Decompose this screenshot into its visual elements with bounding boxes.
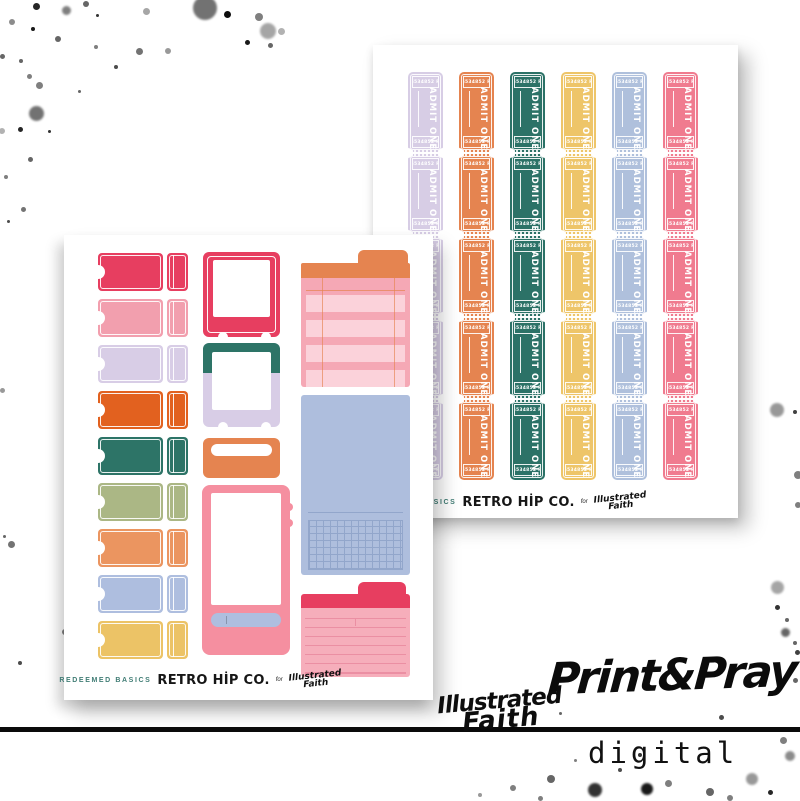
ink-splatter bbox=[94, 45, 98, 49]
stub-rule bbox=[173, 623, 174, 657]
perforation bbox=[564, 232, 593, 234]
perforation-notch bbox=[693, 394, 703, 404]
admit-one-label: ADMIT ONE bbox=[580, 251, 590, 301]
ticket-stub-end-sticker bbox=[167, 345, 188, 383]
phone-bar bbox=[211, 613, 281, 627]
perforation bbox=[513, 314, 542, 316]
notecard-folder-sticker bbox=[301, 582, 410, 677]
stub-outline bbox=[100, 439, 161, 473]
perforation bbox=[411, 150, 440, 152]
admit-one-ticket-sticker: 6534852 R6534852 RADMIT ONE bbox=[561, 400, 596, 480]
phone-button bbox=[285, 503, 293, 511]
folder-band bbox=[301, 263, 410, 278]
perforation bbox=[615, 154, 644, 156]
perforation-notch bbox=[591, 230, 601, 240]
perforation bbox=[615, 236, 644, 238]
ticket-grid: 6534852 R6534852 RADMIT ONE6534852 R6534… bbox=[408, 72, 733, 480]
admit-one-label: ADMIT ONE bbox=[529, 87, 539, 137]
ink-splatter bbox=[48, 130, 51, 133]
ink-splatter bbox=[83, 1, 89, 7]
perforation bbox=[615, 232, 644, 234]
ink-splatter bbox=[510, 785, 516, 791]
tracker-stripe bbox=[306, 320, 405, 337]
ink-splatter bbox=[29, 106, 44, 121]
perforation bbox=[564, 318, 593, 320]
admit-one-ticket-sticker: 6534852 R6534852 RADMIT ONE bbox=[663, 154, 698, 234]
admit-one-ticket-sticker: 6534852 R6534852 RADMIT ONE bbox=[510, 154, 545, 234]
perforation bbox=[615, 314, 644, 316]
ink-splatter bbox=[795, 502, 800, 508]
stub-outline bbox=[100, 485, 161, 519]
ink-splatter bbox=[19, 59, 23, 63]
stub-notch bbox=[91, 495, 105, 509]
print-and-pray-logo: Print&Pray bbox=[546, 646, 797, 706]
perforation-notch bbox=[489, 312, 499, 322]
stub-outline bbox=[169, 577, 186, 611]
ink-splatter bbox=[785, 751, 795, 761]
stub-notch bbox=[91, 541, 105, 555]
ink-splatter bbox=[28, 157, 33, 162]
perforation bbox=[462, 150, 491, 152]
ticket-rule bbox=[469, 419, 470, 455]
admit-one-label: ADMIT ONE bbox=[580, 415, 590, 465]
perforation-notch bbox=[607, 230, 617, 240]
sheet-footer: REDEEMED BASICS RETRO HİP CO. for Illust… bbox=[16, 673, 385, 688]
for-label: for bbox=[276, 677, 283, 683]
perforation-notch bbox=[591, 148, 601, 158]
notecard-tick bbox=[355, 618, 356, 626]
brand-label: RETRO HİP CO. bbox=[462, 495, 574, 510]
illustrated-faith-logo: Illustrated Faith bbox=[593, 492, 647, 513]
perforation-notch bbox=[438, 312, 448, 322]
stub-rule bbox=[173, 485, 174, 519]
notecard-line bbox=[305, 627, 406, 628]
stub-outline bbox=[100, 623, 161, 657]
ticket-rule bbox=[469, 91, 470, 127]
ink-splatter bbox=[478, 793, 482, 797]
admit-one-ticket-sticker: 6534852 R6534852 RADMIT ONE bbox=[612, 318, 647, 398]
admit-one-ticket-sticker: 6534852 R6534852 RADMIT ONE bbox=[663, 236, 698, 316]
stub-outline bbox=[169, 531, 186, 565]
ink-splatter bbox=[547, 775, 555, 783]
ticket-rule bbox=[673, 91, 674, 127]
ink-splatter bbox=[62, 6, 71, 15]
perforation bbox=[513, 396, 542, 398]
ink-splatter bbox=[7, 220, 10, 223]
ink-splatter bbox=[136, 48, 143, 55]
ink-splatter bbox=[3, 535, 6, 538]
perforation-notch bbox=[556, 148, 566, 158]
admit-one-label: ADMIT ONE bbox=[580, 169, 590, 219]
perforation-notch bbox=[607, 394, 617, 404]
perforation bbox=[615, 396, 644, 398]
ticket-rule bbox=[418, 91, 419, 127]
ticket-rule bbox=[673, 419, 674, 455]
stub-outline bbox=[100, 255, 161, 289]
grid-pattern bbox=[308, 520, 403, 570]
perforation-notch bbox=[693, 312, 703, 322]
frame-notch bbox=[218, 422, 228, 432]
ticket-stub-end-sticker bbox=[167, 299, 188, 337]
perforation-notch bbox=[438, 230, 448, 240]
notecard-line bbox=[305, 618, 406, 619]
ticket-rule bbox=[571, 173, 572, 209]
ink-splatter bbox=[794, 471, 800, 479]
ink-splatter bbox=[33, 3, 40, 10]
ink-splatter bbox=[193, 0, 217, 20]
illustrated-faith-logo: Illustrated Faith bbox=[288, 670, 342, 691]
ticket-stub-sticker bbox=[98, 529, 163, 567]
ticket-stub-sticker bbox=[98, 391, 163, 429]
ticket-column: 6534852 R6534852 RADMIT ONE6534852 R6534… bbox=[612, 72, 647, 480]
perforation bbox=[564, 314, 593, 316]
ink-splatter bbox=[706, 788, 714, 796]
admit-one-label: ADMIT ONE bbox=[478, 251, 488, 301]
ink-splatter bbox=[278, 28, 285, 35]
tracker-vline bbox=[394, 278, 395, 387]
perforation-notch bbox=[556, 394, 566, 404]
perforation-notch bbox=[658, 148, 668, 158]
admit-one-ticket-sticker: 6534852 R6534852 RADMIT ONE bbox=[510, 318, 545, 398]
perforation bbox=[564, 400, 593, 402]
perforation-notch bbox=[505, 394, 515, 404]
product-mockup: 6534852 R6534852 RADMIT ONE6534852 R6534… bbox=[0, 0, 800, 800]
stub-rule bbox=[173, 439, 174, 473]
ink-splatter bbox=[21, 207, 26, 212]
perforation-notch bbox=[505, 230, 515, 240]
admit-one-ticket-sticker: 6534852 R6534852 RADMIT ONE bbox=[663, 72, 698, 152]
ticket-rule bbox=[469, 337, 470, 373]
admit-one-ticket-sticker: 6534852 R6534852 RADMIT ONE bbox=[459, 318, 494, 398]
ink-splatter bbox=[165, 48, 171, 54]
admit-one-label: ADMIT ONE bbox=[682, 87, 692, 137]
ink-splatter bbox=[727, 795, 733, 801]
two-tone-frame-sticker bbox=[203, 343, 280, 427]
stub-notch bbox=[91, 449, 105, 463]
ticket-rule bbox=[673, 173, 674, 209]
stub-outline bbox=[100, 577, 161, 611]
notecard-line bbox=[305, 663, 406, 664]
admit-one-label: ADMIT ONE bbox=[427, 169, 437, 219]
ink-splatter bbox=[746, 773, 758, 785]
grid-box-sticker bbox=[301, 395, 410, 575]
ticket-rule bbox=[520, 337, 521, 373]
perforation-notch bbox=[658, 394, 668, 404]
perforation-notch bbox=[454, 312, 464, 322]
admit-one-ticket-sticker: 6534852 R6534852 RADMIT ONE bbox=[663, 318, 698, 398]
digital-label: digital bbox=[588, 736, 738, 770]
ink-splatter bbox=[55, 36, 61, 42]
ticket-rule bbox=[622, 255, 623, 291]
perforation-notch bbox=[642, 148, 652, 158]
admit-one-ticket-sticker: 6534852 R6534852 RADMIT ONE bbox=[612, 400, 647, 480]
ticket-stub-sticker bbox=[98, 575, 163, 613]
perforation bbox=[462, 314, 491, 316]
admit-one-label: ADMIT ONE bbox=[631, 169, 641, 219]
frame-screen bbox=[213, 260, 270, 317]
perforation bbox=[462, 154, 491, 156]
stub-notch bbox=[91, 587, 105, 601]
camera-frame-sticker bbox=[203, 252, 280, 337]
admit-one-label: ADMIT ONE bbox=[682, 415, 692, 465]
ticket-rule bbox=[520, 419, 521, 455]
perforation bbox=[411, 154, 440, 156]
perforation-notch bbox=[438, 394, 448, 404]
ink-splatter bbox=[9, 19, 15, 25]
ink-splatter bbox=[785, 618, 789, 622]
ticket-stub-sticker bbox=[98, 253, 163, 291]
perforation bbox=[666, 236, 695, 238]
admit-one-label: ADMIT ONE bbox=[682, 333, 692, 383]
perforation bbox=[462, 396, 491, 398]
frames-column bbox=[203, 252, 293, 655]
perforation bbox=[564, 154, 593, 156]
admit-one-ticket-sticker: 6534852 R6534852 RADMIT ONE bbox=[510, 72, 545, 152]
ink-splatter bbox=[18, 127, 23, 132]
perforation-notch bbox=[591, 312, 601, 322]
perforation bbox=[666, 150, 695, 152]
frame-notch bbox=[261, 332, 271, 342]
tracker-folder-sticker bbox=[301, 250, 410, 387]
ink-splatter bbox=[255, 13, 263, 21]
stub-notch bbox=[91, 633, 105, 647]
ink-splatter bbox=[574, 759, 577, 762]
perforation bbox=[666, 396, 695, 398]
ink-splatter bbox=[8, 541, 15, 548]
stub-outline bbox=[169, 439, 186, 473]
ticket-stub-sticker bbox=[98, 299, 163, 337]
perforation-notch bbox=[693, 230, 703, 240]
perforation-notch bbox=[540, 148, 550, 158]
perforation-notch bbox=[489, 230, 499, 240]
admit-one-label: ADMIT ONE bbox=[631, 251, 641, 301]
ink-splatter bbox=[4, 175, 8, 179]
ink-splatter bbox=[268, 43, 273, 48]
ink-splatter bbox=[36, 82, 43, 89]
admit-one-label: ADMIT ONE bbox=[529, 251, 539, 301]
admit-one-label: ADMIT ONE bbox=[631, 415, 641, 465]
perforation-notch bbox=[505, 312, 515, 322]
phone-bar-tick bbox=[226, 616, 227, 624]
ink-splatter bbox=[771, 581, 784, 594]
stub-outline bbox=[169, 485, 186, 519]
admit-one-label: ADMIT ONE bbox=[631, 333, 641, 383]
notecard-line bbox=[305, 645, 406, 646]
ink-splatter bbox=[78, 90, 81, 93]
ink-splatter bbox=[768, 790, 773, 795]
notecard-line bbox=[305, 654, 406, 655]
ticket-rule bbox=[571, 255, 572, 291]
ink-splatter bbox=[0, 388, 5, 393]
perforation bbox=[462, 236, 491, 238]
stub-notch bbox=[91, 311, 105, 325]
perforation-notch bbox=[505, 148, 515, 158]
admit-one-ticket-sticker: 6534852 R6534852 RADMIT ONE bbox=[459, 154, 494, 234]
ticket-column: 6534852 R6534852 RADMIT ONE6534852 R6534… bbox=[510, 72, 545, 480]
perforation-notch bbox=[454, 394, 464, 404]
admit-one-label: ADMIT ONE bbox=[427, 87, 437, 137]
tracker-body bbox=[301, 278, 410, 387]
ticket-rule bbox=[418, 173, 419, 209]
ticket-stub-end-sticker bbox=[167, 575, 188, 613]
grid-box-line bbox=[308, 512, 403, 513]
stub-notch bbox=[91, 265, 105, 279]
perforation bbox=[411, 232, 440, 234]
ink-splatter bbox=[114, 65, 118, 69]
perforation bbox=[513, 318, 542, 320]
perforation bbox=[462, 318, 491, 320]
ink-splatter bbox=[665, 780, 672, 787]
ink-splatter bbox=[588, 783, 602, 797]
ticket-stub-end-sticker bbox=[167, 621, 188, 659]
admit-one-label: ADMIT ONE bbox=[529, 169, 539, 219]
admit-one-ticket-sticker: 6534852 R6534852 RADMIT ONE bbox=[408, 72, 443, 152]
ticket-stub-end-sticker bbox=[167, 437, 188, 475]
admit-one-label: ADMIT ONE bbox=[682, 251, 692, 301]
ink-splatter bbox=[143, 8, 150, 15]
ink-splatter bbox=[0, 54, 5, 59]
ink-splatter bbox=[224, 11, 231, 18]
admit-one-ticket-sticker: 6534852 R6534852 RADMIT ONE bbox=[459, 400, 494, 480]
perforation bbox=[513, 400, 542, 402]
perforation bbox=[564, 396, 593, 398]
stub-outline bbox=[100, 347, 161, 381]
perforation bbox=[564, 150, 593, 152]
stub-outline bbox=[100, 301, 161, 335]
stub-outline bbox=[169, 393, 186, 427]
ticket-rule bbox=[469, 173, 470, 209]
perforation-notch bbox=[642, 230, 652, 240]
admit-one-ticket-sticker: 6534852 R6534852 RADMIT ONE bbox=[561, 154, 596, 234]
ink-splatter bbox=[770, 403, 784, 417]
perforation-notch bbox=[642, 312, 652, 322]
perforation-notch bbox=[607, 312, 617, 322]
perforation-notch bbox=[591, 394, 601, 404]
perforation bbox=[615, 318, 644, 320]
admit-one-label: ADMIT ONE bbox=[682, 169, 692, 219]
stub-rule bbox=[173, 301, 174, 335]
ticket-rule bbox=[520, 173, 521, 209]
ink-splatter bbox=[0, 128, 5, 134]
perforation-notch bbox=[658, 312, 668, 322]
tracker-line bbox=[306, 290, 405, 291]
perforation bbox=[666, 318, 695, 320]
admit-one-ticket-sticker: 6534852 R6534852 RADMIT ONE bbox=[663, 400, 698, 480]
ticket-rule bbox=[571, 91, 572, 127]
perforation bbox=[462, 400, 491, 402]
perforation bbox=[666, 232, 695, 234]
perforation-notch bbox=[540, 394, 550, 404]
perforation bbox=[666, 400, 695, 402]
ticket-stub-sticker bbox=[98, 345, 163, 383]
stub-outline bbox=[169, 347, 186, 381]
perforation bbox=[513, 236, 542, 238]
ticket-rule bbox=[520, 91, 521, 127]
perforation-notch bbox=[693, 148, 703, 158]
ticket-column: 6534852 R6534852 RADMIT ONE6534852 R6534… bbox=[561, 72, 596, 480]
admit-one-ticket-sticker: 6534852 R6534852 RADMIT ONE bbox=[510, 236, 545, 316]
admit-one-ticket-sticker: 6534852 R6534852 RADMIT ONE bbox=[612, 72, 647, 152]
ticket-rule bbox=[622, 173, 623, 209]
admit-one-label: ADMIT ONE bbox=[478, 87, 488, 137]
ticket-rule bbox=[622, 419, 623, 455]
perforation-notch bbox=[556, 230, 566, 240]
notecard-line bbox=[305, 636, 406, 637]
ink-splatter bbox=[780, 737, 787, 744]
ink-splatter bbox=[96, 14, 99, 17]
perforation bbox=[615, 150, 644, 152]
tracker-vline bbox=[322, 278, 323, 387]
admit-one-ticket-sticker: 6534852 R6534852 RADMIT ONE bbox=[561, 236, 596, 316]
stub-notch bbox=[91, 403, 105, 417]
ticket-rule bbox=[673, 337, 674, 373]
admit-one-ticket-sticker: 6534852 R6534852 RADMIT ONE bbox=[561, 72, 596, 152]
perforation bbox=[564, 236, 593, 238]
stub-rule bbox=[173, 531, 174, 565]
perforation-notch bbox=[540, 230, 550, 240]
stub-notch bbox=[91, 357, 105, 371]
admit-one-ticket-sticker: 6534852 R6534852 RADMIT ONE bbox=[408, 154, 443, 234]
ticket-stub-end-sticker bbox=[167, 391, 188, 429]
notecard-body bbox=[301, 608, 410, 677]
perforation-notch bbox=[403, 148, 413, 158]
ink-splatter bbox=[641, 783, 653, 795]
perforation bbox=[462, 232, 491, 234]
perforation-notch bbox=[438, 148, 448, 158]
stub-outline bbox=[100, 393, 161, 427]
stub-outline bbox=[100, 531, 161, 565]
perforation-notch bbox=[607, 148, 617, 158]
phone-screen bbox=[211, 493, 281, 605]
ticket-rule bbox=[571, 419, 572, 455]
ink-splatter bbox=[775, 605, 780, 610]
ink-splatter bbox=[793, 410, 797, 414]
ink-splatter bbox=[719, 715, 724, 720]
ticket-stub-sticker bbox=[98, 621, 163, 659]
basics-sticker-sheet: REDEEMED BASICS RETRO HİP CO. for Illust… bbox=[64, 235, 433, 700]
admit-one-ticket-sticker: 6534852 R6534852 RADMIT ONE bbox=[612, 236, 647, 316]
perforation-notch bbox=[489, 148, 499, 158]
perforation bbox=[666, 154, 695, 156]
perforation-notch bbox=[454, 148, 464, 158]
admit-one-label: ADMIT ONE bbox=[529, 333, 539, 383]
phone-button bbox=[285, 519, 293, 527]
stub-rule bbox=[173, 255, 174, 289]
ticket-rule bbox=[571, 337, 572, 373]
perforation bbox=[513, 232, 542, 234]
ticket-stub-sticker bbox=[98, 483, 163, 521]
admit-one-ticket-sticker: 6534852 R6534852 RADMIT ONE bbox=[459, 236, 494, 316]
label-box-sticker bbox=[203, 438, 280, 478]
ink-splatter bbox=[18, 661, 22, 665]
stub-rule bbox=[173, 393, 174, 427]
phone-frame-sticker bbox=[202, 485, 290, 655]
ticket-stub-end-sticker bbox=[167, 253, 188, 291]
folder-band bbox=[301, 594, 410, 608]
ticket-rule bbox=[673, 255, 674, 291]
ink-splatter bbox=[27, 74, 32, 79]
ticket-rule bbox=[622, 91, 623, 127]
frame-notch bbox=[261, 422, 271, 432]
ticket-column: 6534852 R6534852 RADMIT ONE6534852 R6534… bbox=[663, 72, 698, 480]
admit-one-label: ADMIT ONE bbox=[580, 87, 590, 137]
perforation-notch bbox=[642, 394, 652, 404]
stub-rule bbox=[173, 347, 174, 381]
brand-label: RETRO HİP CO. bbox=[157, 673, 269, 688]
tracker-stripe bbox=[306, 370, 405, 387]
perforation bbox=[513, 154, 542, 156]
ticket-rule bbox=[622, 337, 623, 373]
